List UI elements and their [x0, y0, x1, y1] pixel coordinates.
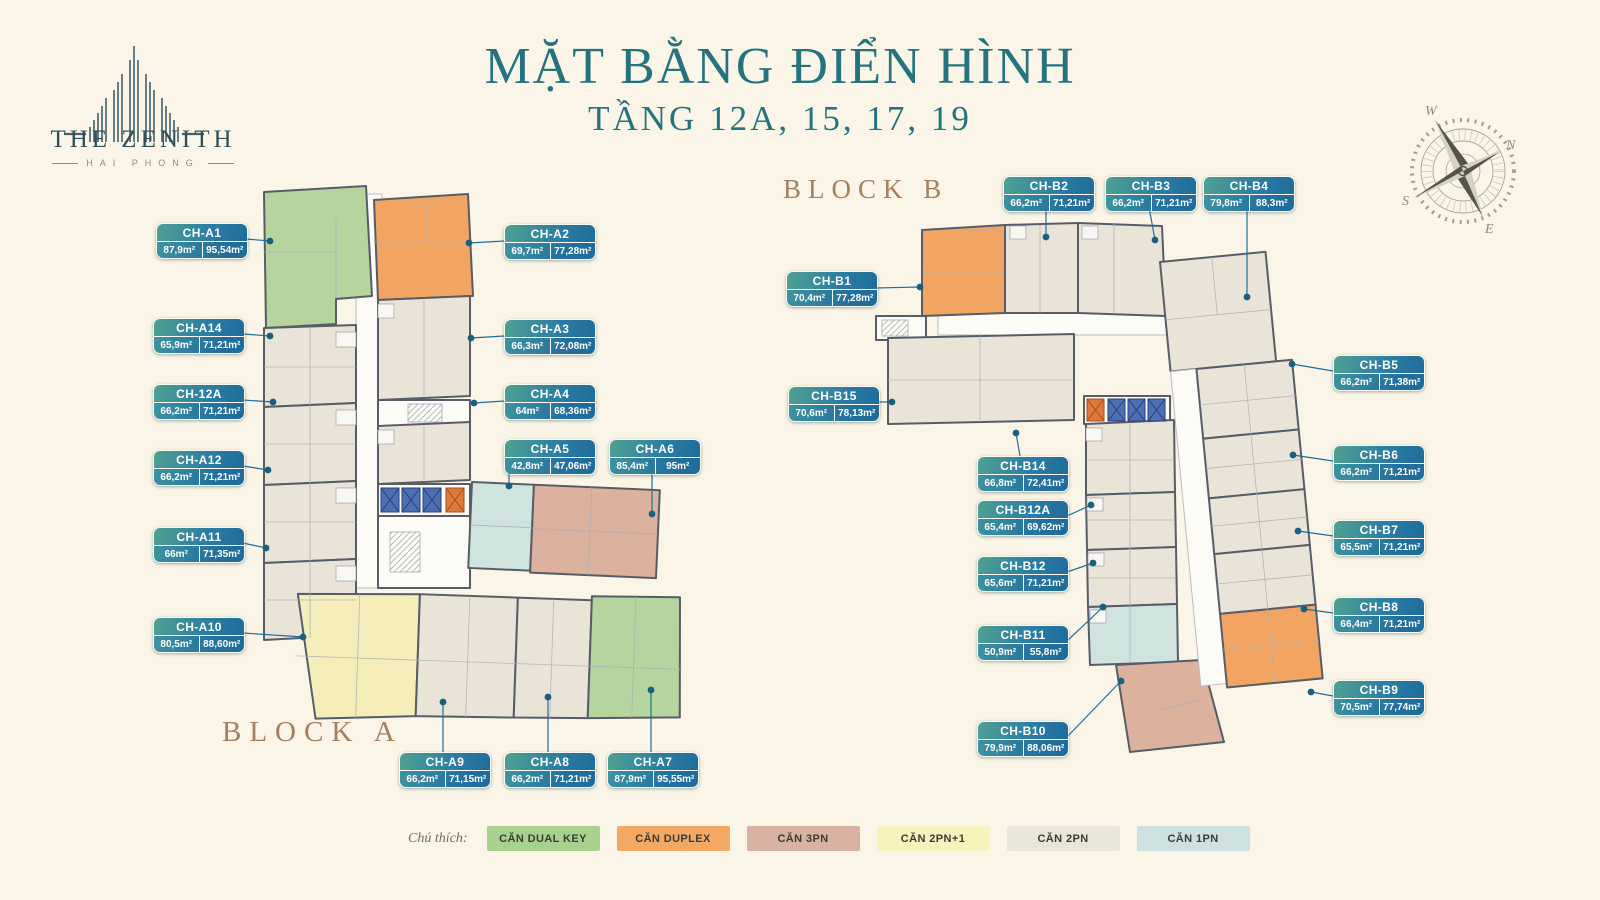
unit-id: CH-B14	[978, 457, 1068, 474]
unit-id: CH-A6	[610, 440, 700, 457]
unit-id: CH-A11	[154, 528, 244, 545]
unit-id: CH-A12	[154, 451, 244, 468]
unit-area-gross: 71,21m²	[199, 403, 245, 419]
unit-area-net: 66,8m²	[978, 475, 1023, 491]
unit-area-net: 70,4m²	[787, 290, 832, 306]
unit-areas: 87,9m²95,54m²	[157, 241, 247, 258]
unit-area-gross: 47,06m²	[550, 458, 596, 474]
unit-area-net: 66,2m²	[1106, 195, 1151, 211]
block-b-label: BLOCK B	[783, 174, 948, 205]
unit-areas: 66,2m²71,21m²	[154, 402, 244, 419]
unit-label-CH-A11: CH-A1166m²71,35m²	[153, 527, 245, 563]
unit-areas: 65,9m²71,21m²	[154, 336, 244, 353]
unit-id: CH-A7	[608, 753, 698, 770]
unit-areas: 65,5m²71,21m²	[1334, 538, 1424, 555]
unit-id: CH-A8	[505, 753, 595, 770]
unit-area-gross: 88,3m²	[1249, 195, 1295, 211]
unit-id: CH-B15	[789, 387, 879, 404]
unit-label-CH-B14: CH-B1466,8m²72,41m²	[977, 456, 1069, 492]
unit-area-gross: 77,28m²	[550, 243, 596, 259]
unit-id: CH-B12	[978, 557, 1068, 574]
unit-CH-A2	[374, 194, 473, 300]
unit-area-net: 66,2m²	[505, 771, 550, 787]
unit-area-gross: 95m²	[655, 458, 701, 474]
unit-area-gross: 95,55m²	[653, 771, 699, 787]
unit-areas: 70,6m²78,13m²	[789, 404, 879, 421]
title-line2: TẦNG 12A, 15, 17, 19	[460, 99, 1100, 139]
unit-label-CH-A10: CH-A1080,5m²88,60m²	[153, 617, 245, 653]
unit-id: CH-A2	[505, 225, 595, 242]
unit-id: CH-A10	[154, 618, 244, 635]
unit-area-gross: 71,15m²	[445, 771, 491, 787]
unit-CH-A8	[514, 598, 592, 721]
unit-area-net: 70,6m²	[789, 405, 834, 421]
unit-id: CH-A5	[505, 440, 595, 457]
unit-area-gross: 88,60m²	[199, 636, 245, 652]
unit-areas: 66,4m²71,21m²	[1334, 615, 1424, 632]
unit-areas: 66,2m²71,21m²	[505, 770, 595, 787]
unit-areas: 64m²68,36m²	[505, 402, 595, 419]
unit-area-gross: 71,21m²	[1379, 616, 1425, 632]
unit-label-CH-A6: CH-A685,4m²95m²	[609, 439, 701, 475]
unit-id: CH-A3	[505, 320, 595, 337]
unit-area-net: 70,5m²	[1334, 699, 1379, 715]
unit-areas: 70,5m²77,74m²	[1334, 698, 1424, 715]
unit-label-CH-B10: CH-B1079,9m²88,06m²	[977, 721, 1069, 757]
unit-area-gross: 71,38m²	[1379, 374, 1425, 390]
unit-area-net: 80,5m²	[154, 636, 199, 652]
unit-area-gross: 88,06m²	[1023, 740, 1069, 756]
unit-CH-B1	[922, 225, 1005, 316]
unit-CH-A7	[588, 594, 684, 721]
compass-w: W	[1425, 104, 1438, 119]
unit-area-gross: 71,21m²	[1151, 195, 1197, 211]
unit-id: CH-B2	[1004, 177, 1094, 194]
unit-areas: 50,9m²55,8m²	[978, 643, 1068, 660]
unit-area-net: 69,7m²	[505, 243, 550, 259]
unit-area-net: 85,4m²	[610, 458, 655, 474]
unit-id: CH-B4	[1204, 177, 1294, 194]
unit-areas: 79,8m²88,3m²	[1204, 194, 1294, 211]
unit-areas: 85,4m²95m²	[610, 457, 700, 474]
compass-s: S	[1402, 194, 1409, 209]
unit-area-gross: 78,13m²	[834, 405, 880, 421]
unit-area-gross: 71,35m²	[199, 546, 245, 562]
unit-id: CH-A4	[505, 385, 595, 402]
unit-areas: 66,2m²71,21m²	[154, 468, 244, 485]
unit-areas: 66,3m²72,08m²	[505, 337, 595, 354]
compass-e: E	[1484, 222, 1494, 237]
unit-area-net: 64m²	[505, 403, 550, 419]
unit-label-CH-A12: CH-A1266,2m²71,21m²	[153, 450, 245, 486]
block-b-floorplan	[860, 210, 1330, 790]
unit-label-CH-A2: CH-A269,7m²77,28m²	[504, 224, 596, 260]
unit-CH-A9	[416, 594, 518, 719]
legend-chip-5: CĂN 1PN	[1137, 826, 1250, 851]
unit-areas: 66,2m²71,21m²	[1334, 463, 1424, 480]
unit-area-net: 66,3m²	[505, 338, 550, 354]
unit-id: CH-12A	[154, 385, 244, 402]
unit-areas: 66,2m²71,21m²	[1106, 194, 1196, 211]
unit-area-net: 66,2m²	[154, 469, 199, 485]
unit-area-gross: 69,62m²	[1023, 519, 1069, 535]
unit-areas: 69,7m²77,28m²	[505, 242, 595, 259]
unit-id: CH-A14	[154, 319, 244, 336]
unit-areas: 79,9m²88,06m²	[978, 739, 1068, 756]
unit-label-CH-B11: CH-B1150,9m²55,8m²	[977, 625, 1069, 661]
unit-area-net: 79,8m²	[1204, 195, 1249, 211]
unit-label-CH-B9: CH-B970,5m²77,74m²	[1333, 680, 1425, 716]
unit-area-gross: 77,74m²	[1379, 699, 1425, 715]
unit-area-gross: 68,36m²	[550, 403, 596, 419]
unit-area-net: 65,6m²	[978, 575, 1023, 591]
unit-label-CH-B6: CH-B666,2m²71,21m²	[1333, 445, 1425, 481]
unit-area-net: 66,2m²	[1004, 195, 1049, 211]
unit-area-gross: 71,21m²	[1379, 464, 1425, 480]
unit-area-gross: 71,21m²	[550, 771, 596, 787]
legend-chip-2: CĂN 3PN	[747, 826, 860, 851]
unit-areas: 80,5m²88,60m²	[154, 635, 244, 652]
unit-id: CH-A1	[157, 224, 247, 241]
unit-area-net: 65,9m²	[154, 337, 199, 353]
unit-label-CH-B15: CH-B1570,6m²78,13m²	[788, 386, 880, 422]
unit-id: CH-B6	[1334, 446, 1424, 463]
unit-areas: 65,6m²71,21m²	[978, 574, 1068, 591]
unit-areas: 87,9m²95,55m²	[608, 770, 698, 787]
unit-CH-B15	[888, 334, 1074, 424]
unit-area-net: 87,9m²	[608, 771, 653, 787]
unit-label-CH-12A: CH-12A66,2m²71,21m²	[153, 384, 245, 420]
legend: Chú thích: CĂN DUAL KEYCĂN DUPLEXCĂN 3PN…	[408, 826, 1250, 851]
unit-id: CH-B1	[787, 272, 877, 289]
unit-label-CH-B2: CH-B266,2m²71,21m²	[1003, 176, 1095, 212]
floorplan-page: THE ZENITH HAI PHONG MẶT BẰNG ĐIỂN HÌNH …	[0, 0, 1600, 900]
unit-id: CH-B3	[1106, 177, 1196, 194]
unit-areas: 42,8m²47,06m²	[505, 457, 595, 474]
unit-label-CH-A14: CH-A1465,9m²71,21m²	[153, 318, 245, 354]
unit-area-gross: 71,21m²	[1379, 539, 1425, 555]
unit-area-net: 65,5m²	[1334, 539, 1379, 555]
block-a-label: BLOCK A	[222, 716, 403, 749]
unit-label-CH-B4: CH-B479,8m²88,3m²	[1203, 176, 1295, 212]
project-logo: THE ZENITH HAI PHONG	[28, 30, 258, 180]
unit-id: CH-B5	[1334, 356, 1424, 373]
unit-area-gross: 77,28m²	[832, 290, 878, 306]
unit-area-gross: 71,21m²	[1023, 575, 1069, 591]
unit-area-net: 65,4m²	[978, 519, 1023, 535]
corridor	[938, 313, 1174, 335]
unit-label-CH-A9: CH-A966,2m²71,15m²	[399, 752, 491, 788]
unit-label-CH-B12A: CH-B12A65,4m²69,62m²	[977, 500, 1069, 536]
unit-area-net: 66,2m²	[154, 403, 199, 419]
unit-area-gross: 55,8m²	[1023, 644, 1069, 660]
unit-label-CH-B1: CH-B170,4m²77,28m²	[786, 271, 878, 307]
legend-chip-4: CĂN 2PN	[1007, 826, 1120, 851]
unit-id: CH-B7	[1334, 521, 1424, 538]
unit-area-net: 66,4m²	[1334, 616, 1379, 632]
unit-label-CH-A5: CH-A542,8m²47,06m²	[504, 439, 596, 475]
unit-id: CH-B12A	[978, 501, 1068, 518]
unit-area-gross: 72,08m²	[550, 338, 596, 354]
unit-areas: 66,2m²71,21m²	[1004, 194, 1094, 211]
unit-CH-A10	[294, 590, 420, 722]
unit-areas: 66,8m²72,41m²	[978, 474, 1068, 491]
unit-id: CH-B8	[1334, 598, 1424, 615]
unit-areas: 66,2m²71,15m²	[400, 770, 490, 787]
unit-label-CH-A7: CH-A787,9m²95,55m²	[607, 752, 699, 788]
unit-areas: 66,2m²71,38m²	[1334, 373, 1424, 390]
unit-areas: 70,4m²77,28m²	[787, 289, 877, 306]
unit-area-net: 42,8m²	[505, 458, 550, 474]
logo-subtitle: HAI PHONG	[28, 158, 258, 168]
unit-area-net: 66,2m²	[1334, 464, 1379, 480]
unit-areas: 65,4m²69,62m²	[978, 518, 1068, 535]
unit-area-net: 79,9m²	[978, 740, 1023, 756]
unit-label-CH-B7: CH-B765,5m²71,21m²	[1333, 520, 1425, 556]
page-title: MẶT BẰNG ĐIỂN HÌNH TẦNG 12A, 15, 17, 19	[460, 40, 1100, 139]
unit-CH-B4	[1160, 252, 1276, 372]
unit-area-gross: 71,21m²	[199, 469, 245, 485]
unit-id: CH-A9	[400, 753, 490, 770]
unit-label-CH-A3: CH-A366,3m²72,08m²	[504, 319, 596, 355]
unit-areas: 66m²71,35m²	[154, 545, 244, 562]
unit-area-gross: 71,21m²	[199, 337, 245, 353]
logo-title: THE ZENITH	[28, 126, 258, 154]
unit-area-net: 66,2m²	[1334, 374, 1379, 390]
unit-label-CH-A8: CH-A866,2m²71,21m²	[504, 752, 596, 788]
unit-id: CH-B11	[978, 626, 1068, 643]
unit-area-gross: 95,54m²	[202, 242, 248, 258]
title-line1: MẶT BẰNG ĐIỂN HÌNH	[460, 40, 1100, 95]
unit-area-net: 87,9m²	[157, 242, 202, 258]
unit-label-CH-A4: CH-A464m²68,36m²	[504, 384, 596, 420]
unit-area-net: 66m²	[154, 546, 199, 562]
unit-id: CH-B9	[1334, 681, 1424, 698]
elevators	[381, 488, 464, 512]
legend-chip-3: CĂN 2PN+1	[877, 826, 990, 851]
unit-label-CH-B3: CH-B366,2m²71,21m²	[1105, 176, 1197, 212]
unit-label-CH-B5: CH-B566,2m²71,38m²	[1333, 355, 1425, 391]
unit-label-CH-B12: CH-B1265,6m²71,21m²	[977, 556, 1069, 592]
unit-label-CH-A1: CH-A187,9m²95,54m²	[156, 223, 248, 259]
compass-rose: W N S E	[1385, 95, 1555, 255]
legend-title: Chú thích:	[408, 831, 468, 847]
unit-area-net: 50,9m²	[978, 644, 1023, 660]
legend-chip-0: CĂN DUAL KEY	[487, 826, 600, 851]
unit-area-gross: 71,21m²	[1049, 195, 1095, 211]
compass-n: N	[1505, 138, 1516, 153]
legend-chip-1: CĂN DUPLEX	[617, 826, 730, 851]
unit-id: CH-B10	[978, 722, 1068, 739]
unit-area-gross: 72,41m²	[1023, 475, 1069, 491]
unit-area-net: 66,2m²	[400, 771, 445, 787]
unit-label-CH-B8: CH-B866,4m²71,21m²	[1333, 597, 1425, 633]
